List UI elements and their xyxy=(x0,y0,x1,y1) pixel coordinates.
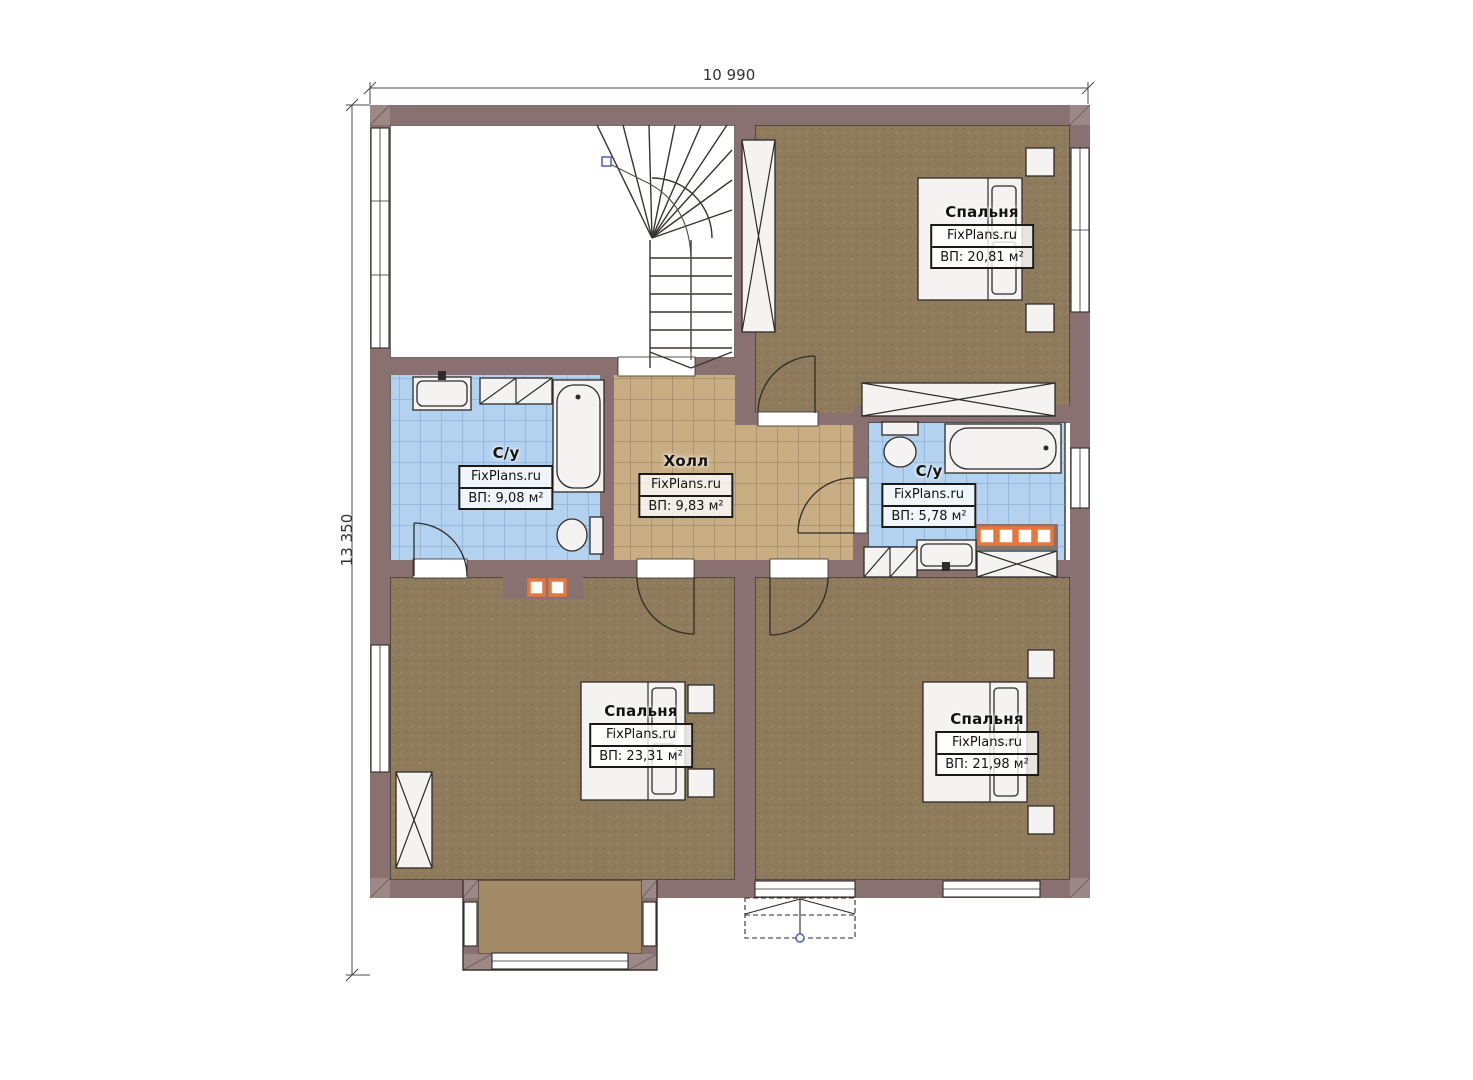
window-left-upper xyxy=(371,128,389,348)
opening-hall-bedroomTR xyxy=(758,412,818,426)
room-info-box: FixPlans.ru ВП: 5,78 м² xyxy=(881,483,976,528)
toilet-right xyxy=(882,422,918,467)
room-info-box: FixPlans.ru ВП: 9,08 м² xyxy=(458,465,553,510)
room-area: ВП: 9,83 м² xyxy=(640,497,731,517)
room-brand: FixPlans.ru xyxy=(460,467,551,489)
texture-bedroom-top-right xyxy=(755,125,1070,422)
room-label-hall: Холл FixPlans.ru ВП: 9,83 м² xyxy=(638,452,733,518)
room-info-box: FixPlans.ru ВП: 9,83 м² xyxy=(638,473,733,518)
room-area: ВП: 23,31 м² xyxy=(591,747,691,767)
room-label-bathroom-right: С/у FixPlans.ru ВП: 5,78 м² xyxy=(881,462,976,528)
room-label-bedroom-bottom-left: Спальня FixPlans.ru ВП: 23,31 м² xyxy=(589,702,693,768)
window-right-upper xyxy=(1071,148,1089,312)
toilet-left xyxy=(557,517,603,554)
room-name: Холл xyxy=(638,452,733,470)
dimension-top xyxy=(364,82,1094,104)
dormer-roof-mark xyxy=(745,898,855,942)
wardrobe-bathroomR-side xyxy=(977,551,1057,577)
flues-right xyxy=(979,528,1052,544)
room-name: Спальня xyxy=(589,702,693,720)
room-name: С/у xyxy=(881,462,976,480)
nightstand xyxy=(1026,148,1054,176)
room-brand: FixPlans.ru xyxy=(937,733,1037,755)
window-left-lower xyxy=(371,645,389,772)
window-bottom-bedroomBR xyxy=(943,881,1040,897)
opening-hall-bathroomR xyxy=(854,478,867,533)
dimension-label-height: 13 350 xyxy=(338,514,356,567)
room-info-box: FixPlans.ru ВП: 20,81 м² xyxy=(930,224,1034,269)
room-brand: FixPlans.ru xyxy=(883,485,974,507)
floor-stair-hall xyxy=(390,125,735,358)
cabinet-bathroom-right xyxy=(864,547,917,577)
floor-plan-drawing xyxy=(0,0,1473,1080)
window-bay-side-right xyxy=(643,902,656,946)
stair-walkline-marker xyxy=(602,157,611,166)
room-info-box: FixPlans.ru ВП: 21,98 м² xyxy=(935,731,1039,776)
dormer-marker xyxy=(796,934,804,942)
opening-stair-hall xyxy=(618,357,695,376)
dimension-label-width: 10 990 xyxy=(703,66,756,84)
window-bay-front xyxy=(492,953,628,969)
room-label-bedroom-top-right: Спальня FixPlans.ru ВП: 20,81 м² xyxy=(930,203,1034,269)
window-bottom-dormer xyxy=(755,881,855,897)
room-label-bathroom-left: С/у FixPlans.ru ВП: 9,08 м² xyxy=(458,444,553,510)
floor-plan-canvas: 10 990 13 350 Спальня FixPlans.ru ВП: 20… xyxy=(0,0,1473,1080)
room-area: ВП: 20,81 м² xyxy=(932,248,1032,268)
window-bay-side-left xyxy=(464,902,477,946)
nightstand xyxy=(688,769,714,797)
room-area: ВП: 21,98 м² xyxy=(937,755,1037,775)
wall-stairhall-bottom xyxy=(370,358,755,375)
room-info-box: FixPlans.ru ВП: 23,31 м² xyxy=(589,723,693,768)
room-area: ВП: 9,08 м² xyxy=(460,489,551,509)
wardrobe-bottom-left xyxy=(396,772,432,868)
room-area: ВП: 5,78 м² xyxy=(883,507,974,527)
nightstand xyxy=(1028,806,1054,834)
room-name: Спальня xyxy=(930,203,1034,221)
wardrobe-top-right-vertical xyxy=(742,140,775,332)
opening-bathroomL xyxy=(413,559,467,578)
nightstand xyxy=(1026,304,1054,332)
room-brand: FixPlans.ru xyxy=(932,226,1032,248)
cabinet-bathroom-left xyxy=(480,378,552,404)
room-brand: FixPlans.ru xyxy=(640,475,731,497)
wall-bedroom-divider xyxy=(735,577,755,898)
bathtub-left xyxy=(553,380,604,492)
wardrobe-top-right-horizontal xyxy=(862,383,1055,416)
room-brand: FixPlans.ru xyxy=(591,725,691,747)
sink-bathroom-left xyxy=(413,371,471,410)
room-name: С/у xyxy=(458,444,553,462)
sink-bathroom-right xyxy=(917,540,976,571)
room-label-bedroom-bottom-right: Спальня FixPlans.ru ВП: 21,98 м² xyxy=(935,710,1039,776)
opening-hall-bedroomBR xyxy=(770,559,828,578)
wall-outer-top xyxy=(370,105,1090,125)
floor-bay-window xyxy=(478,880,642,954)
opening-hall-bedroomBL xyxy=(637,559,694,578)
room-name: Спальня xyxy=(935,710,1039,728)
nightstand xyxy=(1028,650,1054,678)
window-right-middle xyxy=(1071,448,1089,508)
